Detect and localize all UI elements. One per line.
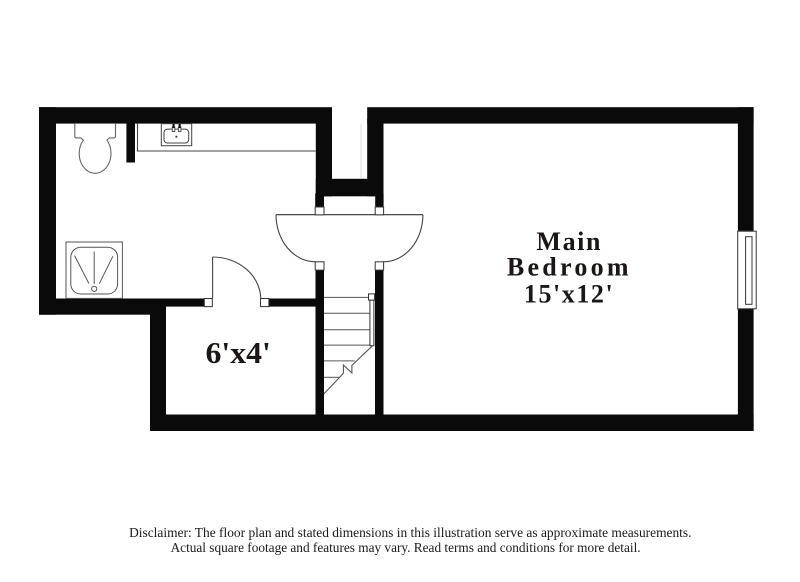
svg-text:Disclaimer: The floor plan and: Disclaimer: The floor plan and stated di…: [129, 525, 691, 540]
svg-text:Actual square footage and feat: Actual square footage and features may v…: [171, 540, 641, 555]
svg-text:6'x4': 6'x4': [206, 335, 271, 370]
